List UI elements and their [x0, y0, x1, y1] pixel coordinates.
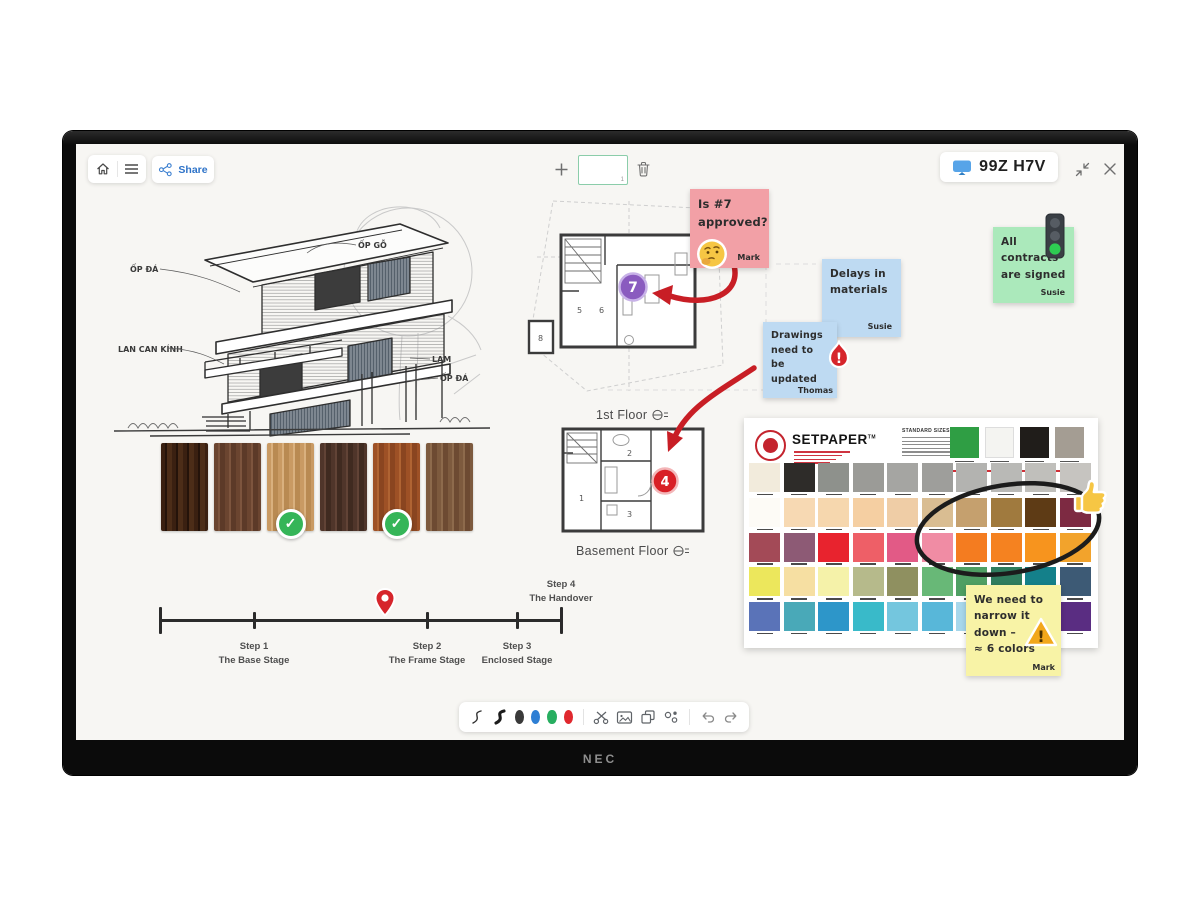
image-icon: [616, 710, 633, 725]
hamburger-menu-icon: [124, 163, 139, 175]
close-icon: [1103, 162, 1117, 176]
house-sketch[interactable]: ỐP ĐÁ ỐP GỖ LAN CAN KÍNH LAM ỐP ĐÁ: [110, 190, 495, 445]
pen-thin-icon: [469, 709, 485, 726]
palette-swatch: [853, 498, 884, 532]
wood-swatch[interactable]: [426, 443, 473, 531]
svg-text:8: 8: [538, 334, 543, 343]
wood-swatch[interactable]: [161, 443, 208, 531]
palette-swatch: [1025, 533, 1056, 567]
divider: [583, 709, 584, 725]
palette-swatch: [784, 567, 815, 601]
palette-swatch: [853, 602, 884, 636]
palette-swatch: [1060, 602, 1091, 636]
divider: [689, 709, 690, 725]
palette-swatch: [1025, 498, 1056, 532]
timeline-step3-tick: [516, 612, 519, 629]
note-text: Delays in materials: [830, 266, 894, 299]
duplicate-icon: [640, 709, 656, 725]
svg-text:!: !: [1037, 627, 1044, 646]
palette-swatch: [853, 567, 884, 601]
color-green-button[interactable]: [547, 710, 556, 724]
section-mark-icon: [652, 409, 669, 421]
palette-swatch: [784, 498, 815, 532]
palette-swatch: [991, 533, 1022, 567]
marker-7[interactable]: 7: [620, 274, 647, 301]
drawing-toolbar: [459, 702, 749, 732]
note-text: Drawings need to be updated: [771, 329, 830, 388]
palette-swatch: [922, 567, 953, 601]
palette-swatch: [818, 463, 849, 497]
palette-swatch: [922, 602, 953, 636]
note-author: Thomas: [798, 386, 833, 395]
annotation-label: LAM: [432, 355, 451, 364]
palette-swatch: [1060, 533, 1091, 567]
palette-swatch: [887, 567, 918, 601]
svg-text:3: 3: [627, 510, 632, 519]
hero-swatch: [950, 427, 979, 458]
monitor-brand-logo: NEC: [63, 752, 1137, 766]
thumbs-up-emoji[interactable]: [1071, 476, 1109, 516]
svg-text:4: 4: [660, 475, 669, 490]
urgent-flame-icon[interactable]: !: [824, 340, 854, 372]
palette-brand: SETPAPERTM: [792, 432, 876, 447]
cut-button[interactable]: [593, 710, 609, 725]
thinking-face-emoji[interactable]: [696, 238, 728, 270]
undo-icon: [700, 710, 716, 724]
scissors-icon: [593, 710, 609, 725]
palette-swatch: [749, 533, 780, 567]
wood-swatch[interactable]: ✓: [373, 443, 420, 531]
close-button[interactable]: [1100, 159, 1120, 179]
svg-text:6: 6: [599, 306, 604, 315]
palette-swatch: [784, 463, 815, 497]
timeline-step2-tick: [426, 612, 429, 629]
redo-button[interactable]: [723, 710, 739, 724]
traffic-light-icon[interactable]: [1043, 213, 1067, 261]
palette-swatch: [991, 463, 1022, 497]
palette-swatch: [922, 463, 953, 497]
note-text: Is #7 approved?: [698, 196, 762, 232]
section-mark-icon: [673, 545, 690, 557]
palette-swatch: [991, 498, 1022, 532]
palette-swatch: [956, 498, 987, 532]
display-icon: [952, 159, 972, 176]
palette-swatch: [922, 533, 953, 567]
undo-button[interactable]: [700, 710, 716, 724]
divider: [117, 161, 118, 177]
palette-swatch: [749, 602, 780, 636]
palette-swatch: [956, 463, 987, 497]
timeline-line: [160, 619, 562, 622]
svg-text:!: !: [836, 351, 842, 367]
share-icon: [158, 162, 173, 177]
annotation-label: ỐP ĐÁ: [130, 262, 159, 274]
home-icon: [95, 161, 111, 177]
note-author: Susie: [868, 322, 892, 331]
palette-swatch: [853, 533, 884, 567]
note-author: Mark: [737, 253, 760, 262]
timeline-step4-label: Step 4The Handover: [496, 578, 626, 607]
color-red-button[interactable]: [564, 710, 573, 724]
shapes-button[interactable]: [663, 709, 679, 725]
timeline-step1-tick: [253, 612, 256, 629]
timeline-step3-label: Step 3Enclosed Stage: [452, 640, 582, 669]
palette-swatch: [749, 463, 780, 497]
timeline-end-tick: [560, 607, 563, 634]
home-button[interactable]: [95, 161, 111, 177]
note-author: Susie: [1041, 288, 1065, 297]
palette-swatch: [818, 498, 849, 532]
timeline-end-tick: [159, 607, 162, 634]
color-blue-button[interactable]: [531, 710, 540, 724]
plus-icon: [554, 162, 569, 177]
shapes-icon: [663, 709, 679, 725]
hero-swatches: [950, 427, 1084, 458]
monitor-bezel: ỐP ĐÁ ỐP GỖ LAN CAN KÍNH LAM ỐP ĐÁ ✓✓: [63, 131, 1137, 775]
palette-swatch: [749, 567, 780, 601]
basement-floor-plan[interactable]: 1 2 3 4: [555, 425, 715, 543]
palette-swatch: [887, 533, 918, 567]
palette-swatch: [887, 463, 918, 497]
svg-text:2: 2: [627, 449, 632, 458]
svg-text:5: 5: [577, 306, 582, 315]
page-thumbnail[interactable]: 1: [578, 155, 628, 185]
delete-page-button[interactable]: [632, 158, 654, 180]
share-label: Share: [178, 164, 207, 176]
outer-walls: [563, 429, 703, 531]
palette-swatch: [818, 567, 849, 601]
hero-swatch: [1055, 427, 1084, 458]
whiteboard-screen: ỐP ĐÁ ỐP GỖ LAN CAN KÍNH LAM ỐP ĐÁ ✓✓: [76, 144, 1124, 740]
collapse-button[interactable]: [1072, 159, 1092, 179]
home-menu-card: [88, 155, 146, 183]
palette-swatch: [922, 498, 953, 532]
timeline-step1-label: Step 1The Base Stage: [189, 640, 319, 669]
house-lines: [202, 224, 452, 436]
svg-text:7: 7: [628, 280, 638, 296]
wood-swatch[interactable]: [214, 443, 261, 531]
duplicate-button[interactable]: [640, 709, 656, 725]
session-code: 99Z H7V: [979, 158, 1046, 176]
approved-check-icon: ✓: [276, 509, 306, 539]
setpaper-logo: [755, 430, 786, 461]
pen-thin-button[interactable]: [469, 709, 485, 726]
pen-thick-icon: [492, 709, 508, 726]
menu-button[interactable]: [124, 163, 139, 175]
palette-swatch: [784, 533, 815, 567]
page-number: 1: [621, 177, 624, 183]
palette-swatch: [853, 463, 884, 497]
palette-swatch: [1060, 567, 1091, 601]
basement-floor-label: Basement Floor: [576, 544, 690, 558]
palette-swatch: [818, 533, 849, 567]
location-pin-icon[interactable]: [373, 587, 397, 619]
insert-image-button[interactable]: [616, 710, 633, 725]
warning-triangle-icon[interactable]: !: [1024, 617, 1058, 648]
palette-swatch: [1025, 463, 1056, 497]
palette-swatch: [749, 498, 780, 532]
marker-4[interactable]: 4: [653, 469, 678, 494]
collapse-icon: [1074, 161, 1091, 178]
hero-swatch: [985, 427, 1014, 458]
wood-swatch[interactable]: ✓: [267, 443, 314, 531]
svg-text:1: 1: [579, 494, 584, 503]
page: ỐP ĐÁ ỐP GỖ LAN CAN KÍNH LAM ỐP ĐÁ ✓✓: [0, 0, 1200, 900]
wood-swatch-row: ✓✓: [161, 443, 473, 531]
palette-swatch: [784, 602, 815, 636]
hero-swatch: [1020, 427, 1049, 458]
sizes-title: STANDARD SIZES: [902, 428, 950, 434]
wood-swatch[interactable]: [320, 443, 367, 531]
add-page-button[interactable]: [550, 158, 572, 180]
share-button[interactable]: Share: [152, 156, 214, 183]
note-author: Mark: [1032, 663, 1055, 672]
palette-swatch: [887, 602, 918, 636]
color-black-button[interactable]: [515, 710, 524, 724]
trash-icon: [636, 161, 651, 177]
first-floor-label: 1st Floor: [596, 408, 669, 422]
palette-swatch: [956, 533, 987, 567]
session-code-pill[interactable]: 99Z H7V: [940, 152, 1058, 182]
redo-icon: [723, 710, 739, 724]
pen-thick-button[interactable]: [492, 709, 508, 726]
palette-swatch: [818, 602, 849, 636]
palette-swatch: [887, 498, 918, 532]
approved-check-icon: ✓: [382, 509, 412, 539]
